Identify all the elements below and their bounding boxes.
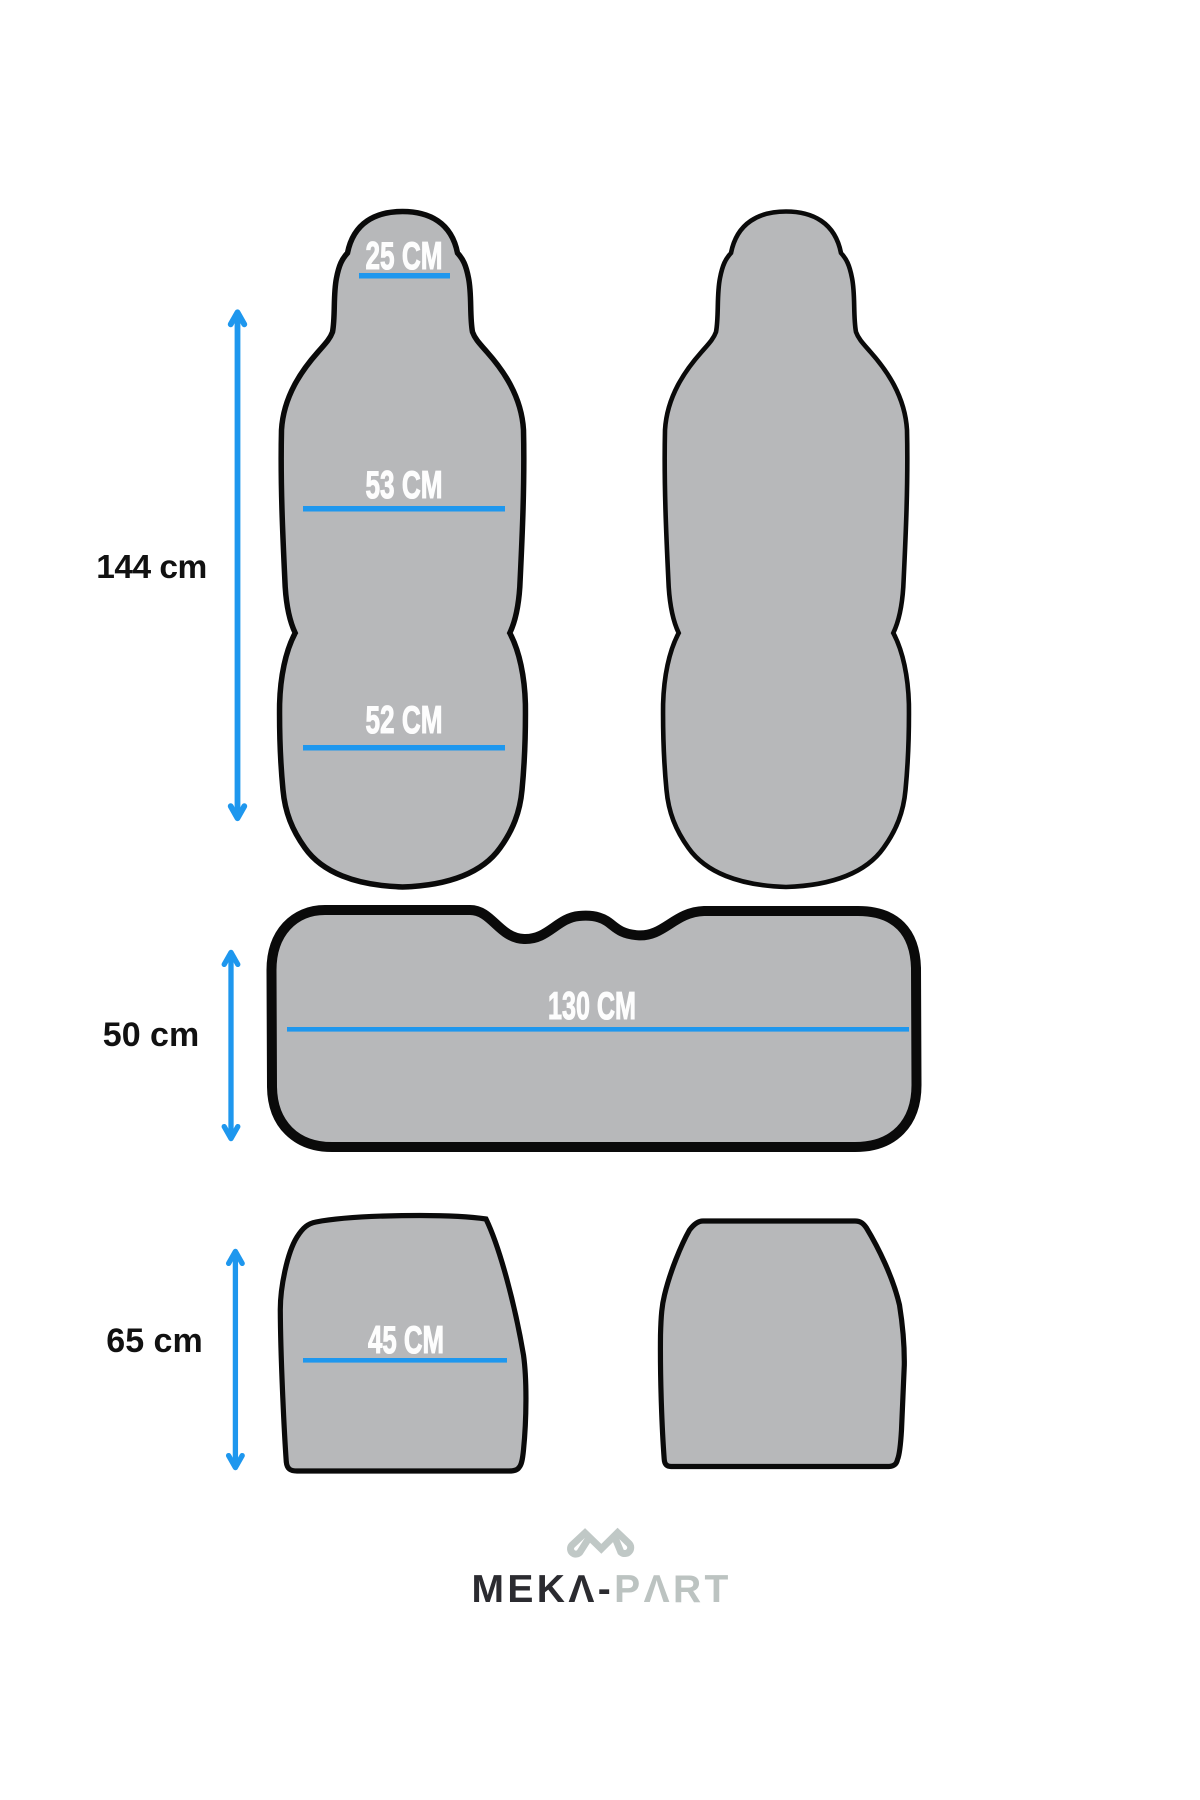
svg-text:MEKΛ-PΛRT: MEKΛ-PΛRT: [472, 1568, 732, 1611]
svg-text:50 cm: 50 cm: [103, 1016, 199, 1054]
svg-text:144 cm: 144 cm: [96, 549, 207, 586]
svg-text:45 CM: 45 CM: [368, 1319, 444, 1362]
svg-text:25 CM: 25 CM: [366, 235, 443, 278]
svg-text:52 CM: 52 CM: [366, 699, 443, 742]
svg-text:53 CM: 53 CM: [366, 464, 443, 507]
svg-text:130 CM: 130 CM: [548, 985, 636, 1028]
svg-text:65 cm: 65 cm: [106, 1322, 202, 1360]
